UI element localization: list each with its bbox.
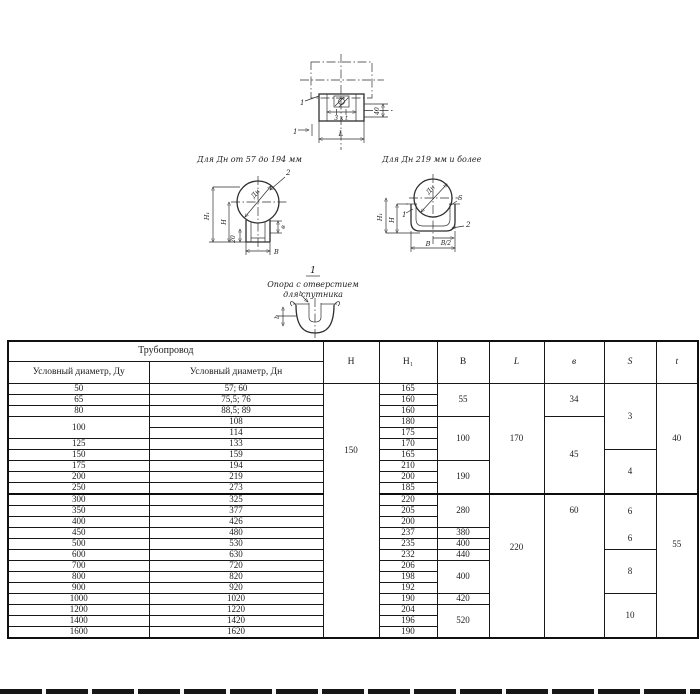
s-cell: 10 (604, 594, 656, 639)
b-cell: 440 (437, 550, 489, 561)
dim-label-s: S (458, 194, 463, 202)
header-row-1: Трубопровод H H₁ B L в S t (8, 341, 698, 362)
du-cell: 1000 (8, 594, 149, 605)
h1-cell: 175 (379, 428, 437, 439)
dn-cell: 75,5; 76 (149, 395, 323, 406)
dn-cell: 630 (149, 550, 323, 561)
dn-cell: 530 (149, 539, 323, 550)
left-section-title: Для Дн от 57 до 194 мм (196, 155, 302, 164)
dn-cell: 1420 (149, 616, 323, 627)
dn-cell: 820 (149, 572, 323, 583)
b-cell: 420 (437, 594, 489, 605)
dim-label-h1: H₁ (376, 213, 384, 222)
h1-cell: 196 (379, 616, 437, 627)
dim-label-b: В (273, 248, 279, 256)
dn-cell: 1620 (149, 627, 323, 639)
b-cell: 100 (437, 417, 489, 461)
dim-label-20: 20 (230, 235, 237, 244)
dn-cell: 57; 60 (149, 384, 323, 395)
dim-label-L: L (338, 130, 344, 138)
du-cell: 65 (8, 395, 149, 406)
h1-cell: 204 (379, 605, 437, 616)
h1-cell: 198 (379, 572, 437, 583)
b-cell: 55 (437, 384, 489, 417)
b-cell: 380 (437, 528, 489, 539)
du-cell: 900 (8, 583, 149, 594)
du-cell: 800 (8, 572, 149, 583)
h1-cell: 160 (379, 406, 437, 417)
du-cell: 1200 (8, 605, 149, 616)
du-cell: 400 (8, 517, 149, 528)
part-label-2: 2 (285, 169, 291, 177)
header-dn: Условный диаметр, Дн (149, 362, 323, 384)
h1-cell: 185 (379, 483, 437, 495)
h1-cell: 160 (379, 395, 437, 406)
du-cell: 500 (8, 539, 149, 550)
b-cell: 520 (437, 605, 489, 639)
h1-cell: 200 (379, 472, 437, 483)
dn-cell: 480 (149, 528, 323, 539)
v-cell: 45 (544, 417, 604, 495)
section-mark-label: 1 (293, 128, 297, 136)
dim-label-dn: Дн (424, 183, 437, 196)
du-cell: 100 (8, 417, 149, 439)
leader-line (270, 177, 285, 190)
page-cutoff-strip (0, 689, 700, 694)
h1-cell: 220 (379, 494, 437, 506)
header-col-s: S (604, 341, 656, 384)
dn-cell: 159 (149, 450, 323, 461)
top-view: 3 х t L 1 1 40 (293, 54, 394, 150)
dn-cell: 219 (149, 472, 323, 483)
header-col-b: B (437, 341, 489, 384)
dim-label-v: в (280, 225, 287, 229)
part-label-2: 2 (465, 221, 471, 229)
t-cell: 55 (656, 494, 698, 638)
leader-line (406, 209, 413, 213)
du-cell: 300 (8, 494, 149, 506)
h1-cell: 190 (379, 594, 437, 605)
v-cell: 60 (544, 494, 604, 638)
section-note: 1 Опора с отверстием для спутника b b (267, 265, 359, 341)
du-cell: 175 (8, 461, 149, 472)
du-cell: 1600 (8, 627, 149, 639)
h1-cell: 205 (379, 506, 437, 517)
dim-label-h: H (388, 217, 396, 224)
right-section-view: Для Дн 219 мм и более Дн 1 H₁ H S 2 В/2 … (376, 155, 482, 252)
header-col-h: H (323, 341, 379, 384)
header-col-t: t (656, 341, 698, 384)
du-cell: 700 (8, 561, 149, 572)
h1-cell: 200 (379, 517, 437, 528)
du-cell: 50 (8, 384, 149, 395)
h1-cell: 237 (379, 528, 437, 539)
du-cell: 250 (8, 483, 149, 495)
du-cell: 150 (8, 450, 149, 461)
dn-cell: 108 (149, 417, 323, 428)
dimensions-table: Трубопровод H H₁ B L в S t Условный диам… (7, 340, 699, 639)
part-label-1: 1 (300, 99, 304, 107)
s-cell: 6 (604, 494, 656, 528)
dn-cell: 1220 (149, 605, 323, 616)
dn-cell: 426 (149, 517, 323, 528)
h1-cell: 170 (379, 439, 437, 450)
note-section-number: 1 (310, 265, 316, 276)
dn-cell: 920 (149, 583, 323, 594)
h1-cell: 206 (379, 561, 437, 572)
left-section-view: Для Дн от 57 до 194 мм Дн H₁ H 20 В в 2 (196, 155, 302, 256)
note-caption-line2: для спутника (283, 290, 343, 299)
h-cell: 150 (323, 384, 379, 639)
v-cell: 34 (544, 384, 604, 417)
dim-label-b2: В/2 (440, 240, 451, 247)
b-cell: 190 (437, 461, 489, 495)
h1-cell: 165 (379, 384, 437, 395)
dn-cell: 1020 (149, 594, 323, 605)
dim-label-h: H (220, 219, 228, 226)
dn-cell: 720 (149, 561, 323, 572)
leader-line (305, 96, 319, 101)
h1-cell: 192 (379, 583, 437, 594)
part-label-1: 1 (402, 211, 406, 219)
dim-label-b-left: b (274, 315, 281, 319)
dim-label-pitch: 3 х t (334, 115, 348, 122)
dn-cell: 88,5; 89 (149, 406, 323, 417)
dim-label-b: В (425, 240, 431, 248)
dim-label-40: 40 (374, 107, 381, 116)
du-cell: 80 (8, 406, 149, 417)
du-cell: 450 (8, 528, 149, 539)
header-col-h1: H₁ (379, 341, 437, 384)
s-cell: 8 (604, 550, 656, 594)
h1-cell: 165 (379, 450, 437, 461)
b-cell: 280 (437, 494, 489, 528)
s-cell: 4 (604, 450, 656, 495)
s-cell: 6 (604, 528, 656, 550)
header-col-l: L (489, 341, 544, 384)
dn-cell: 273 (149, 483, 323, 495)
technical-drawings: 3 х t L 1 1 40 Для Дн от 57 до 194 мм Дн… (0, 0, 700, 345)
header-col-v: в (544, 341, 604, 384)
table-row: 5057; 601501655517034340 (8, 384, 698, 395)
dn-cell: 194 (149, 461, 323, 472)
du-cell: 1400 (8, 616, 149, 627)
h1-cell: 210 (379, 461, 437, 472)
header-pipeline: Трубопровод (8, 341, 323, 362)
h1-cell: 232 (379, 550, 437, 561)
header-du: Условный диаметр, Ду (8, 362, 149, 384)
h1-cell: 235 (379, 539, 437, 550)
du-cell: 600 (8, 550, 149, 561)
dim-label-dn: Дн (249, 187, 262, 200)
dim-label-b-top: b (299, 291, 303, 298)
s-cell: 3 (604, 384, 656, 450)
right-section-title: Для Дн 219 мм и более (381, 155, 482, 164)
note-caption-line1: Опора с отверстием (267, 280, 359, 289)
dn-cell: 377 (149, 506, 323, 517)
t-cell: 40 (656, 384, 698, 495)
b-cell: 400 (437, 539, 489, 550)
du-cell: 125 (8, 439, 149, 450)
l-cell: 220 (489, 494, 544, 638)
l-cell: 170 (489, 384, 544, 495)
du-cell: 200 (8, 472, 149, 483)
h1-cell: 190 (379, 627, 437, 639)
b-cell: 400 (437, 561, 489, 594)
dn-cell: 133 (149, 439, 323, 450)
du-cell: 350 (8, 506, 149, 517)
dn-cell: 114 (149, 428, 323, 439)
dn-cell: 325 (149, 494, 323, 506)
dim-label-h1: H₁ (203, 212, 211, 221)
h1-cell: 180 (379, 417, 437, 428)
